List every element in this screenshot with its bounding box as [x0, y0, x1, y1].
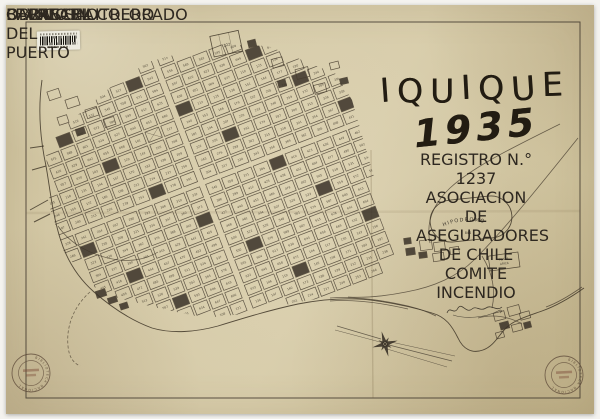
block-number: 166: [218, 106, 225, 112]
block-number: 238: [382, 249, 389, 255]
block-number: 505: [316, 173, 323, 179]
block-number: 649: [235, 56, 242, 62]
block-number: 537: [216, 255, 223, 261]
block-number: 617: [272, 248, 279, 254]
block-number: 477: [327, 154, 334, 160]
compass-ray: [387, 349, 447, 367]
outlying-block: [339, 77, 348, 85]
block-number: 632: [245, 273, 252, 279]
block-number: 410: [290, 154, 297, 160]
block-number: 108: [219, 311, 226, 317]
block-number: 364: [95, 272, 102, 278]
attribution-block: REGISTRO N.° 1237 ASOCIACION DE ASEGURAD…: [416, 150, 536, 323]
city-block: [222, 126, 239, 141]
block-number: 444: [147, 267, 154, 273]
block-number: 259: [286, 95, 293, 101]
block-number: 468: [226, 222, 233, 228]
block-number: 399: [232, 191, 239, 197]
block-number: 171: [345, 249, 352, 255]
block-number: 382: [300, 132, 307, 138]
block-number: 104: [308, 248, 315, 254]
block-number: 664: [208, 81, 215, 87]
block-number: 179: [233, 100, 240, 106]
block-number: 110: [240, 69, 247, 75]
block-number: 517: [115, 88, 122, 94]
block-number: 261: [243, 125, 250, 131]
block-number: 304: [205, 169, 212, 175]
outlying-block: [57, 115, 69, 126]
block-number: 573: [93, 125, 100, 131]
fold-crease-vertical: [371, 150, 373, 398]
block-number: 356: [269, 145, 276, 151]
block-number: 526: [157, 292, 164, 298]
block-number: 567: [162, 304, 169, 310]
block-number: 494: [257, 210, 264, 216]
block-number: 375: [154, 235, 161, 241]
block-number: 616: [55, 169, 62, 175]
block-number: 147: [271, 292, 278, 298]
city-block: [245, 45, 262, 60]
block-number: 101: [134, 138, 141, 144]
block-number: 459: [120, 291, 127, 297]
block-number: 576: [267, 235, 274, 241]
map-paper: 1051461872282695756166571181592002413233…: [6, 5, 594, 414]
block-number: 584: [152, 88, 159, 94]
block-number: 464: [311, 160, 318, 166]
block-number: 227: [323, 286, 330, 292]
block-number: 201: [291, 298, 298, 304]
outlying-block: [47, 88, 61, 100]
block-number: 319: [176, 198, 183, 204]
outlying-block: [119, 302, 128, 310]
block-number: 677: [224, 75, 231, 81]
block-number: 184: [361, 243, 368, 249]
scanned-map-page: 1051461872282695756166571181592002413233…: [0, 0, 600, 419]
block-number: 237: [165, 170, 172, 176]
block-number: 388: [169, 229, 176, 235]
block-number: 602: [299, 223, 306, 229]
block-number: 156: [372, 224, 379, 230]
port-piers: [30, 146, 50, 222]
block-number: 589: [283, 229, 290, 235]
block-number: 287: [275, 113, 282, 119]
block-number: 597: [171, 81, 178, 87]
block-number: 373: [196, 204, 203, 210]
block-number: 638: [176, 93, 183, 99]
block-number: 668: [119, 144, 126, 150]
block-number: 593: [194, 292, 201, 298]
block-number: 455: [206, 230, 213, 236]
city-block: [56, 132, 73, 147]
city-block: [362, 206, 379, 221]
block-number: 197: [377, 236, 384, 242]
block-number: 295: [101, 241, 108, 247]
block-number: 269: [69, 253, 76, 259]
city-block: [126, 77, 143, 92]
block-number: 177: [276, 69, 283, 75]
library-stamp-right: BIBLIOTECA NACIONAL: [545, 356, 583, 394]
block-number: 272: [302, 88, 309, 94]
block-number: 349: [122, 248, 129, 254]
block-number: 630: [288, 242, 295, 248]
signature: [445, 302, 507, 319]
block-number: 134: [255, 298, 262, 304]
block-number: 118: [65, 194, 72, 200]
block-number: 552: [189, 280, 196, 286]
block-number: 334: [149, 223, 156, 229]
outlying-block: [107, 296, 117, 304]
block-number: 145: [313, 261, 320, 267]
block-number: 207: [222, 119, 229, 125]
block-number: 253: [355, 274, 362, 280]
outlying-block: [95, 289, 107, 299]
block-number: 660: [230, 293, 237, 299]
block-number: 416: [158, 248, 165, 254]
block-number: 619: [225, 280, 232, 286]
block-number: 600: [342, 192, 349, 198]
block-number: 144: [97, 182, 104, 188]
block-number: 621: [183, 311, 190, 317]
attribution-registro: REGISTRO N.° 1237: [416, 150, 536, 188]
block-number: 214: [307, 292, 314, 298]
block-number: 640: [130, 126, 137, 132]
block-number: 520: [289, 198, 296, 204]
block-number: 423: [306, 148, 313, 154]
city-block: [172, 293, 189, 308]
city-block: [269, 155, 286, 170]
block-number: 587: [326, 198, 333, 204]
block-number: 345: [211, 184, 218, 190]
block-number: 106: [266, 279, 273, 285]
block-number: 669: [335, 223, 342, 229]
block-number: 119: [282, 273, 289, 279]
block-number: 653: [146, 120, 153, 126]
block-number: 358: [227, 178, 234, 184]
block-number: 550: [235, 247, 242, 253]
block-number: 408: [332, 120, 339, 126]
block-number: 300: [291, 107, 298, 113]
city-block: [196, 212, 213, 227]
block-number: 614: [98, 138, 105, 144]
block-number: 168: [171, 139, 178, 145]
block-number: 140: [186, 119, 193, 125]
block-number: 155: [155, 145, 162, 151]
block-number: 173: [302, 279, 309, 285]
block-number: 629: [71, 163, 78, 169]
block-number: 328: [280, 126, 287, 132]
block-number: 209: [176, 151, 183, 157]
block-number: 164: [260, 75, 267, 81]
block-number: 531: [348, 161, 355, 167]
block-number: 670: [76, 175, 83, 181]
block-number: 613: [357, 186, 364, 192]
block-number: 130: [340, 236, 347, 242]
block-number: 569: [182, 62, 189, 68]
city-block: [80, 242, 97, 257]
block-number: 267: [112, 222, 119, 228]
block-number: 418: [116, 279, 123, 285]
block-number: 239: [122, 201, 129, 207]
block-number: 647: [214, 299, 221, 305]
block-number: 440: [237, 203, 244, 209]
block-number: 544: [364, 155, 371, 161]
block-number: 658: [277, 260, 284, 266]
block-number: 574: [310, 204, 317, 210]
block-number: 181: [191, 131, 198, 137]
block-number: 153: [202, 112, 209, 118]
compass-rose: [335, 326, 455, 367]
block-number: 612: [141, 107, 148, 113]
block-number: 266: [371, 268, 378, 274]
block-number: 601: [82, 144, 89, 150]
outlying-block: [65, 96, 80, 109]
block-number: 641: [346, 205, 353, 211]
block-number: 442: [190, 236, 197, 242]
block-number: 235: [211, 138, 218, 144]
block-number: 151: [244, 82, 251, 88]
block-number: 481: [241, 216, 248, 222]
label-obras-del-puerto: OBRAS DEL PUERTO: [6, 5, 70, 62]
block-number: 244: [313, 70, 320, 76]
block-number: 479: [284, 185, 291, 191]
block-number: 339: [338, 89, 345, 95]
block-number: 575: [50, 156, 57, 162]
block-number: 240: [339, 280, 346, 286]
block-number: 643: [304, 236, 311, 242]
block-number: 585: [368, 167, 375, 173]
block-number: 412: [248, 185, 255, 191]
block-number: 401: [185, 223, 192, 229]
block-number: 438: [279, 173, 286, 179]
block-number: 625: [157, 101, 164, 107]
block-number: 354: [311, 114, 318, 120]
city-block: [102, 158, 119, 173]
block-number: 519: [72, 119, 79, 125]
block-number: 377: [111, 266, 118, 272]
block-number: 362: [138, 241, 145, 247]
block-number: 610: [187, 75, 194, 81]
block-number: 453: [253, 197, 260, 203]
block-number: 545: [104, 107, 111, 113]
block-number: 274: [259, 119, 266, 125]
city-block: [246, 236, 263, 251]
block-number: 565: [205, 274, 212, 280]
block-number: 190: [292, 63, 299, 69]
block-number: 131: [81, 188, 88, 194]
block-number: 185: [101, 194, 108, 200]
outlying-block: [329, 61, 339, 70]
block-number: 666: [161, 113, 168, 119]
block-number: 384: [259, 166, 266, 172]
block-number: 524: [200, 261, 207, 267]
block-number: 332: [191, 192, 198, 198]
block-number: 367: [327, 108, 334, 114]
port-works-dashed-outline: [68, 292, 90, 366]
block-number: 513: [141, 298, 148, 304]
block-number: 485: [152, 279, 159, 285]
block-number: 675: [267, 44, 274, 50]
block-number: 205: [265, 88, 272, 94]
block-number: 503: [359, 142, 366, 148]
block-number: 502: [142, 63, 149, 69]
city-block: [126, 268, 143, 283]
block-number: 194: [207, 125, 214, 131]
block-number: 341: [296, 120, 303, 126]
block-number: 427: [221, 210, 228, 216]
block-number: 170: [128, 170, 135, 176]
block-number: 138: [229, 88, 236, 94]
block-number: 289: [232, 144, 239, 150]
block-number: 673: [250, 285, 257, 291]
block-number: 254: [96, 228, 103, 234]
block-number: 241: [80, 235, 87, 241]
block-number: 280: [128, 216, 135, 222]
block-number: 246: [270, 101, 277, 107]
outlying-block: [247, 39, 256, 48]
block-number: 429: [174, 242, 181, 248]
block-number: 511: [184, 267, 191, 273]
block-number: 159: [70, 206, 77, 212]
block-number: 347: [165, 217, 172, 223]
city-block: [148, 184, 165, 199]
label-del: DEL: [6, 24, 70, 43]
block-number: 518: [332, 167, 339, 173]
block-number: 222: [196, 144, 203, 150]
block-number: 250: [181, 164, 188, 170]
city-block: [292, 262, 309, 277]
block-number: 252: [138, 195, 145, 201]
block-number: 321: [133, 229, 140, 235]
block-number: 496: [211, 242, 218, 248]
block-number: 651: [192, 87, 199, 93]
block-number: 507: [273, 204, 280, 210]
outlying-block: [75, 127, 86, 136]
block-number: 200: [74, 219, 81, 225]
block-number: 588: [66, 150, 73, 156]
block-number: 556: [166, 68, 173, 74]
block-number: 571: [136, 94, 143, 100]
block-number: 343: [253, 151, 260, 157]
block-number: 293: [144, 210, 151, 216]
block-number: 492: [300, 179, 307, 185]
block-number: 263: [200, 156, 207, 162]
label-puerto: PUERTO: [6, 43, 70, 62]
block-number: 212: [350, 261, 357, 267]
block-number: 278: [170, 183, 177, 189]
block-number: 615: [315, 217, 322, 223]
block-number: 504: [99, 94, 106, 100]
block-number: 657: [60, 181, 67, 187]
block-number: 308: [117, 235, 124, 241]
block-number: 395: [316, 126, 323, 132]
block-number: 143: [356, 230, 363, 236]
block-number: 634: [198, 305, 205, 311]
attribution-organization: ASOCIACION DE ASEGURADORES DE CHILE: [416, 188, 536, 264]
block-number: 449: [338, 136, 345, 142]
block-number: 604: [256, 254, 263, 260]
block-number: 142: [139, 151, 146, 157]
block-number: 559: [337, 179, 344, 185]
block-number: 642: [87, 157, 94, 163]
label-obras: OBRAS: [6, 5, 70, 24]
block-number: 302: [248, 138, 255, 144]
block-number: 313: [307, 101, 314, 107]
block-number: 623: [203, 69, 210, 75]
block-number: 421: [348, 114, 355, 120]
block-number: 102: [351, 217, 358, 223]
compass-ray: [389, 345, 452, 361]
block-number: 112: [197, 100, 204, 106]
block-number: 572: [353, 173, 360, 179]
block-number: 509: [230, 235, 237, 241]
block-number: 548: [278, 216, 285, 222]
block-number: 578: [221, 267, 228, 273]
block-number: 595: [214, 50, 221, 56]
library-stamp-left: BIBLIOTECA NACIONAL: [12, 354, 50, 392]
block-number: 157: [112, 176, 119, 182]
block-number: 276: [216, 150, 223, 156]
attribution-committee: COMITE INCENDIO: [416, 264, 536, 302]
block-number: 125: [213, 94, 220, 100]
block-number: 483: [195, 248, 202, 254]
block-number: 386: [216, 197, 223, 203]
block-number: 160: [286, 286, 293, 292]
block-number: 543: [147, 76, 154, 82]
block-number: 291: [186, 176, 193, 182]
block-number: 535: [262, 223, 269, 229]
block-number: 591: [240, 260, 247, 266]
block-number: 671: [293, 254, 300, 260]
block-number: 490: [343, 148, 350, 154]
block-number: 636: [219, 62, 226, 68]
outlying-block: [277, 79, 286, 88]
city-block: [176, 101, 193, 116]
block-number: 462: [354, 130, 361, 136]
block-number: 211: [133, 182, 140, 188]
block-number: 224: [149, 176, 156, 182]
block-number: 466: [268, 191, 275, 197]
outlying-block: [511, 323, 522, 332]
block-number: 582: [198, 56, 205, 62]
block-number: 315: [264, 132, 271, 138]
block-number: 522: [246, 229, 253, 235]
block-number: 655: [103, 150, 110, 156]
block-number: 470: [179, 254, 186, 260]
block-number: 425: [264, 179, 271, 185]
block-number: 369: [285, 138, 292, 144]
block-number: 233: [254, 107, 261, 113]
city-block: [315, 181, 332, 196]
block-number: 103: [92, 169, 99, 175]
block-number: 436: [322, 142, 329, 148]
block-number: 323: [90, 260, 97, 266]
city-block: [338, 96, 355, 111]
block-number: 330: [237, 157, 244, 163]
block-number: 186: [318, 273, 325, 279]
block-number: 533: [305, 192, 312, 198]
block-number: 606: [209, 286, 216, 292]
block-number: 599: [125, 113, 132, 119]
block-number: 515: [162, 56, 169, 62]
block-number: 656: [319, 229, 326, 235]
block-number: 317: [221, 163, 228, 169]
block-number: 129: [123, 157, 130, 163]
block-number: 199: [334, 267, 341, 273]
block-number: 627: [114, 132, 121, 138]
block-number: 192: [249, 94, 256, 100]
block-number: 127: [166, 126, 173, 132]
block-number: 220: [238, 113, 245, 119]
